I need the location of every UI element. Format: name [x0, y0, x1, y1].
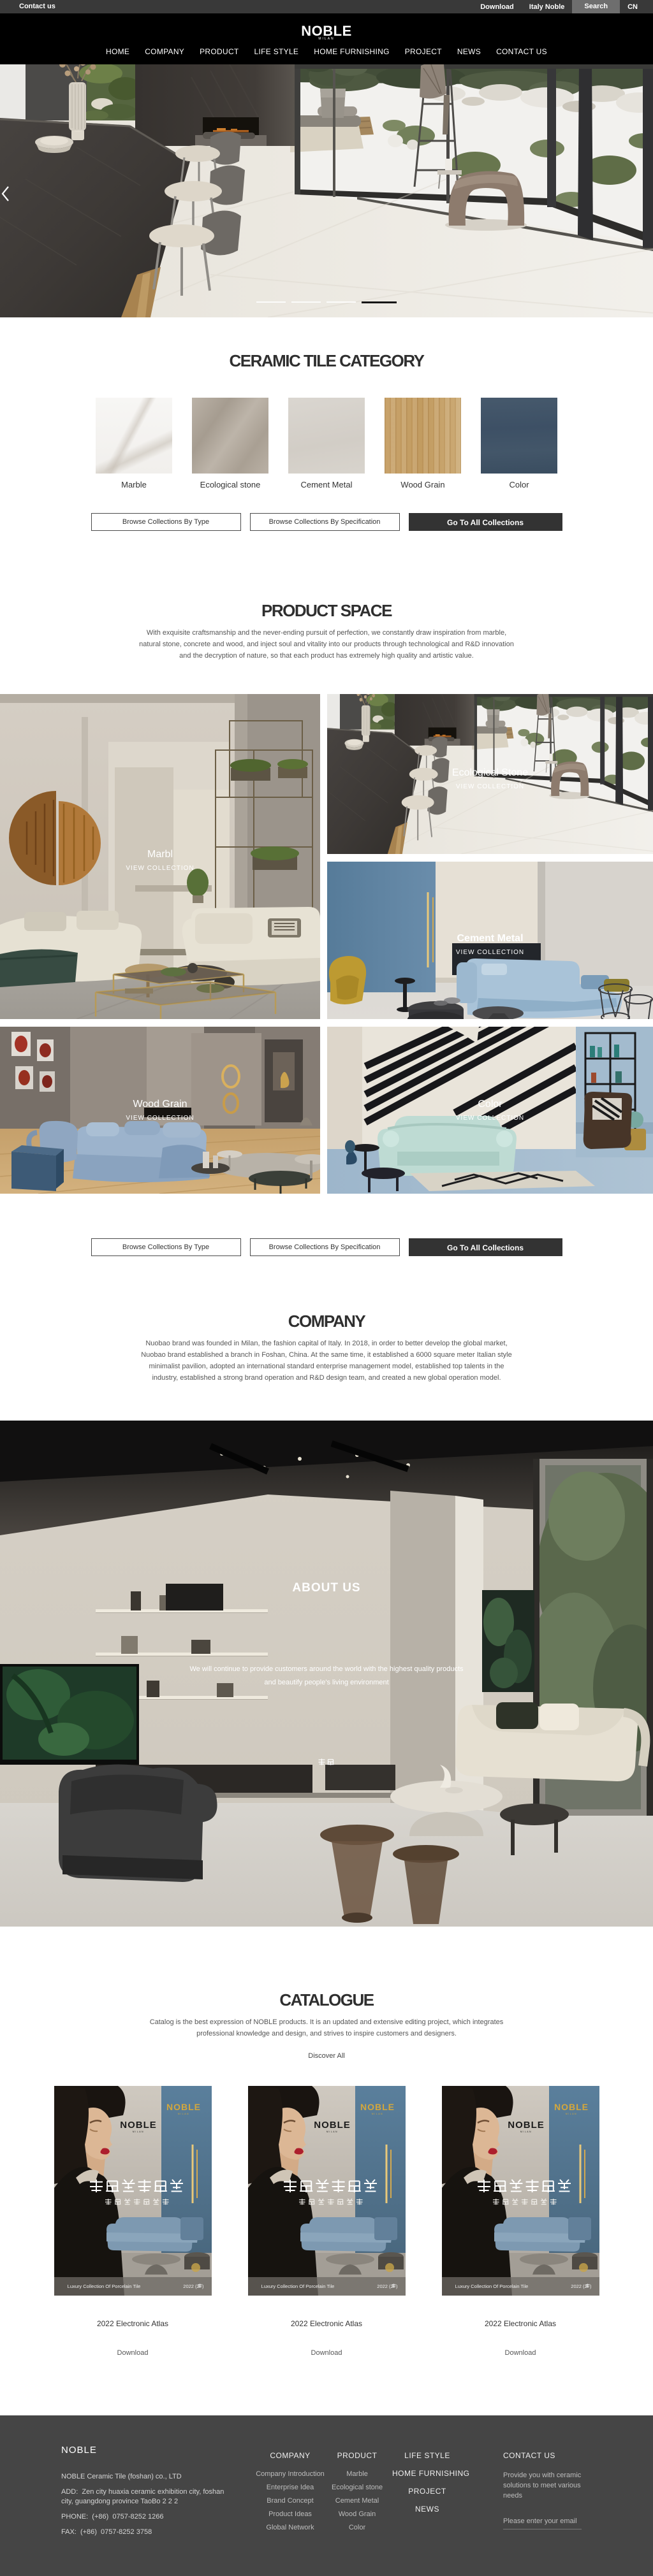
svg-text:2022 (2: 2022 (2 — [183, 2283, 199, 2289]
svg-text:MILAN: MILAN — [520, 2131, 531, 2133]
svg-text:Luxury Collection Of Porcelain: Luxury Collection Of Porcelain Tile — [67, 2283, 140, 2289]
svg-text:MILAN: MILAN — [132, 2131, 143, 2133]
svg-text:NOBLE: NOBLE — [120, 2120, 157, 2131]
svg-text:NOBLE: NOBLE — [166, 2102, 201, 2112]
svg-text:2022 (2: 2022 (2 — [377, 2283, 393, 2289]
svg-text:Luxury Collection Of Porcelain: Luxury Collection Of Porcelain Tile — [455, 2283, 528, 2289]
svg-text:NOBLE: NOBLE — [554, 2102, 589, 2112]
svg-text:MILAN: MILAN — [371, 2113, 383, 2115]
svg-text:2022 (2: 2022 (2 — [571, 2283, 587, 2289]
svg-text:Luxury Collection Of Porcelain: Luxury Collection Of Porcelain Tile — [261, 2283, 334, 2289]
svg-text:NOBLE: NOBLE — [508, 2120, 545, 2131]
svg-text:NOBLE: NOBLE — [314, 2120, 351, 2131]
svg-text:MILAN: MILAN — [565, 2113, 576, 2115]
svg-text:NOBLE: NOBLE — [360, 2102, 395, 2112]
svg-text:MILAN: MILAN — [177, 2113, 189, 2115]
svg-text:MILAN: MILAN — [326, 2131, 337, 2133]
